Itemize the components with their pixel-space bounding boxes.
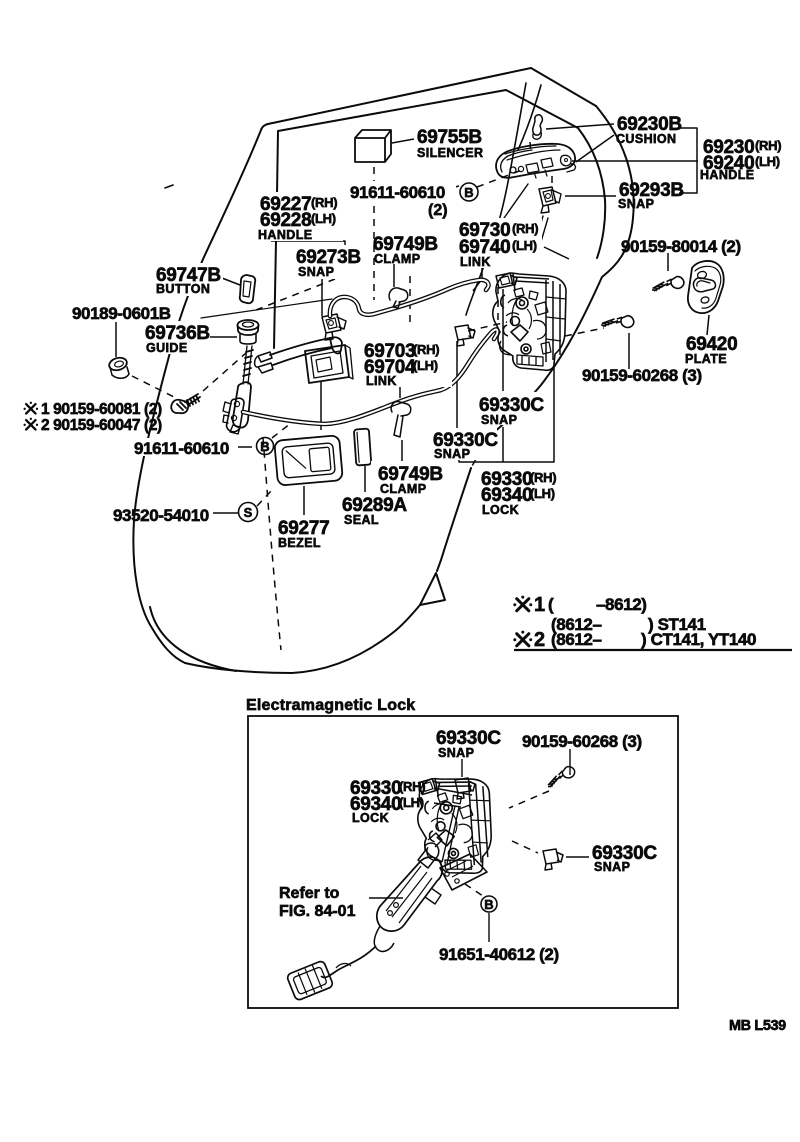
svg-text:B: B <box>484 897 493 912</box>
svg-text:69755B: 69755B <box>417 127 482 148</box>
svg-text:90159-60268 (3): 90159-60268 (3) <box>582 366 702 385</box>
svg-text:(LH): (LH) <box>512 238 537 253</box>
svg-text:(2): (2) <box>428 202 448 219</box>
svg-text:SNAP: SNAP <box>594 860 630 874</box>
svg-text:LINK: LINK <box>460 255 491 269</box>
svg-text:CUSHION: CUSHION <box>616 132 676 146</box>
svg-text:SNAP: SNAP <box>298 265 334 279</box>
svg-text:B: B <box>464 185 473 200</box>
svg-text:1: 1 <box>534 594 545 616</box>
svg-text:MB L539: MB L539 <box>729 1018 786 1034</box>
svg-text:Electramagnetic Lock: Electramagnetic Lock <box>246 697 415 714</box>
svg-text:CLAMP: CLAMP <box>380 482 426 496</box>
svg-text:CLAMP: CLAMP <box>374 252 420 266</box>
svg-text:SNAP: SNAP <box>618 197 654 211</box>
svg-text:(RH): (RH) <box>755 138 781 153</box>
svg-text:FIG. 84-01: FIG. 84-01 <box>279 903 356 920</box>
svg-text:BEZEL: BEZEL <box>278 536 321 550</box>
svg-text:93520-54010: 93520-54010 <box>113 506 209 525</box>
svg-text:(: ( <box>548 595 554 614</box>
svg-text:91651-40612 (2): 91651-40612 (2) <box>439 945 559 964</box>
svg-text:SNAP: SNAP <box>434 447 470 461</box>
svg-text:HANDLE: HANDLE <box>258 228 312 242</box>
svg-text:HANDLE: HANDLE <box>700 168 754 182</box>
svg-text:S: S <box>244 505 253 520</box>
svg-text:–8612): –8612) <box>596 595 647 614</box>
svg-text:SEAL: SEAL <box>344 513 379 527</box>
svg-text:LOCK: LOCK <box>352 811 389 825</box>
svg-text:(8612–: (8612– <box>551 630 602 649</box>
svg-text:90159-60268 (3): 90159-60268 (3) <box>522 732 642 751</box>
svg-text:GUIDE: GUIDE <box>146 341 188 355</box>
svg-text:(LH): (LH) <box>311 211 336 226</box>
svg-text:BUTTON: BUTTON <box>156 282 210 296</box>
svg-text:(RH): (RH) <box>413 342 439 357</box>
svg-text:LOCK: LOCK <box>482 503 519 517</box>
svg-text:90189-0601B: 90189-0601B <box>72 304 171 323</box>
svg-text:(RH): (RH) <box>311 195 337 210</box>
svg-text:) CT141, YT140: ) CT141, YT140 <box>641 630 756 649</box>
svg-text:PLATE: PLATE <box>685 352 727 366</box>
svg-text:2: 2 <box>534 629 545 651</box>
svg-text:(RH): (RH) <box>530 470 556 485</box>
svg-text:SILENCER: SILENCER <box>417 146 483 160</box>
svg-text:SNAP: SNAP <box>438 746 474 760</box>
svg-text:91611-60610: 91611-60610 <box>134 439 229 458</box>
svg-text:(LH): (LH) <box>530 486 555 501</box>
svg-text:B: B <box>260 439 269 454</box>
svg-text:SNAP: SNAP <box>481 413 517 427</box>
svg-text:(LH): (LH) <box>755 154 780 169</box>
svg-text:1 90159-60081 (2): 1 90159-60081 (2) <box>41 401 162 418</box>
svg-text:90159-80014 (2): 90159-80014 (2) <box>621 237 741 256</box>
svg-text:91611-60610: 91611-60610 <box>350 183 445 202</box>
svg-text:2 90159-60047 (2): 2 90159-60047 (2) <box>41 417 162 434</box>
svg-text:(LH): (LH) <box>413 358 438 373</box>
svg-text:Refer to: Refer to <box>279 885 340 902</box>
svg-text:LINK: LINK <box>366 374 397 388</box>
svg-text:(RH): (RH) <box>512 221 538 236</box>
